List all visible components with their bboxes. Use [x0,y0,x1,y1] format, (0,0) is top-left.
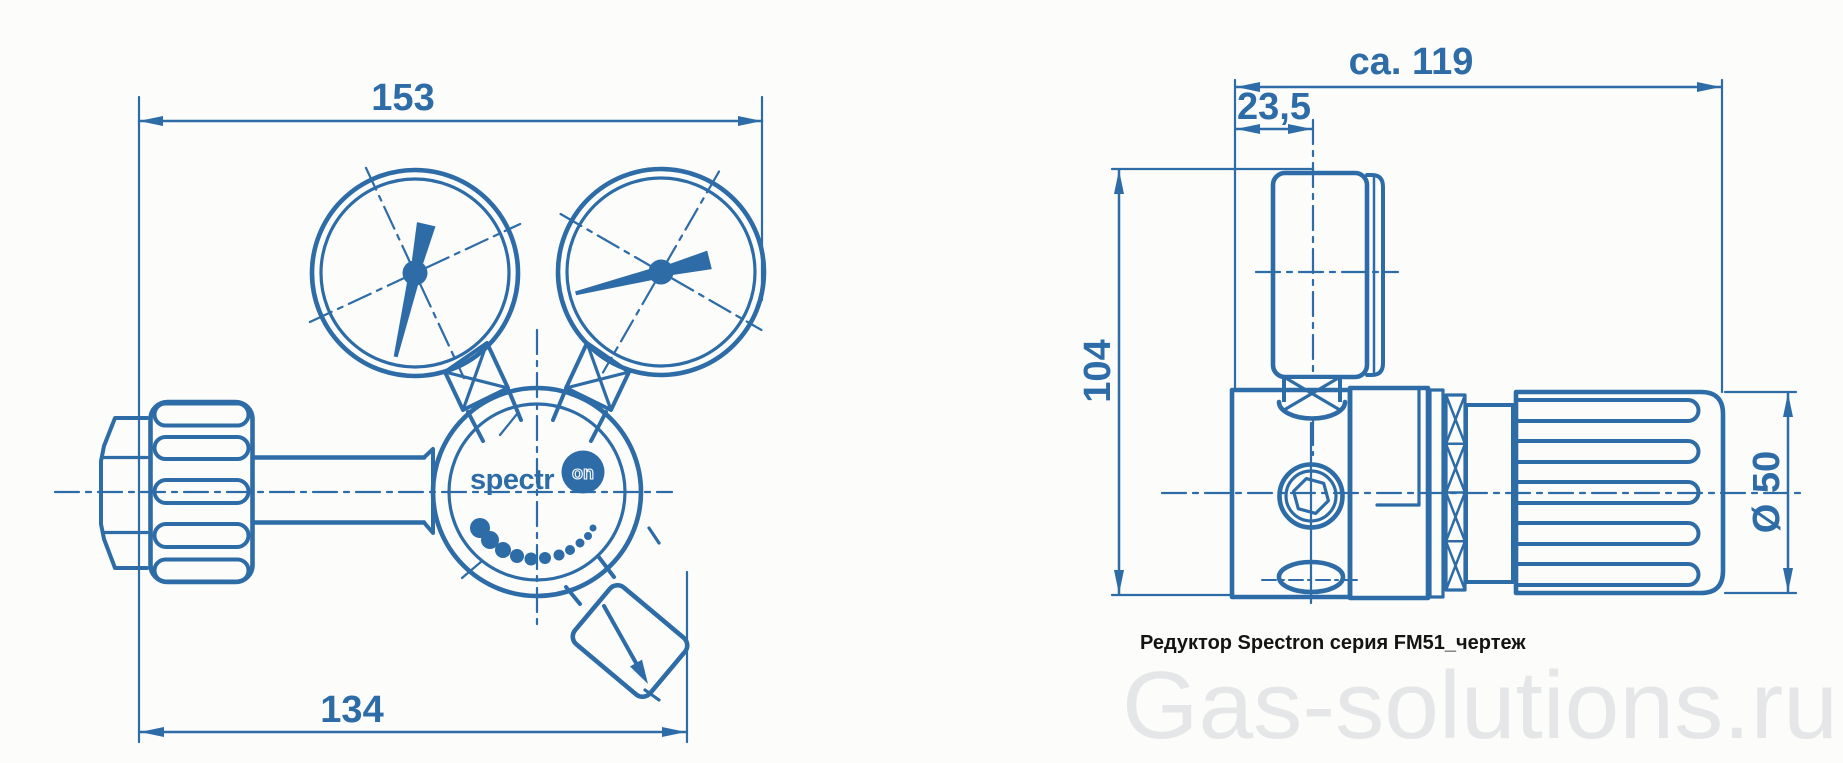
dim-ca119-label: ca. 119 [1349,41,1474,83]
technical-drawing-page: 153 134 [0,0,1843,763]
gauge-needle [573,248,713,306]
flow-arrow [604,606,636,663]
body-block [1232,390,1350,603]
brand-logo: spectr on [470,451,605,497]
side-view: ca. 119 23,5 104 Ø 50 [1077,41,1800,603]
gauge-needle [383,221,438,359]
front-view: 153 134 [55,77,819,742]
dim-153-label: 153 [371,77,434,119]
gauge-high-pressure [261,119,569,427]
outlet-connection [566,528,691,701]
dim-104-label: 104 [1077,339,1119,402]
inlet-connection [101,402,433,582]
regulator-drawing: 153 134 [0,0,1843,763]
watermark: Gas-solutions.ru [1122,652,1838,759]
logo-text-suffix: on [572,463,594,483]
gauge-valve-symbol [1279,377,1345,419]
dim-23-5-label: 23,5 [1237,86,1311,128]
gauge-low-pressure [503,114,820,431]
logo-text: spectr [470,464,554,496]
dim-134-label: 134 [320,689,383,731]
stem-axis-stub [500,414,517,435]
dimension-23-5: 23,5 [1236,86,1312,134]
dimension-104: 104 [1077,169,1313,595]
dim-diameter-label: Ø 50 [1746,451,1788,533]
lock-ring [1446,395,1465,590]
drawing-caption: Редуктор Spectron серия FM51_чертеж [1140,632,1526,654]
gauge-side [1273,173,1383,377]
dotted-arc [470,518,597,566]
